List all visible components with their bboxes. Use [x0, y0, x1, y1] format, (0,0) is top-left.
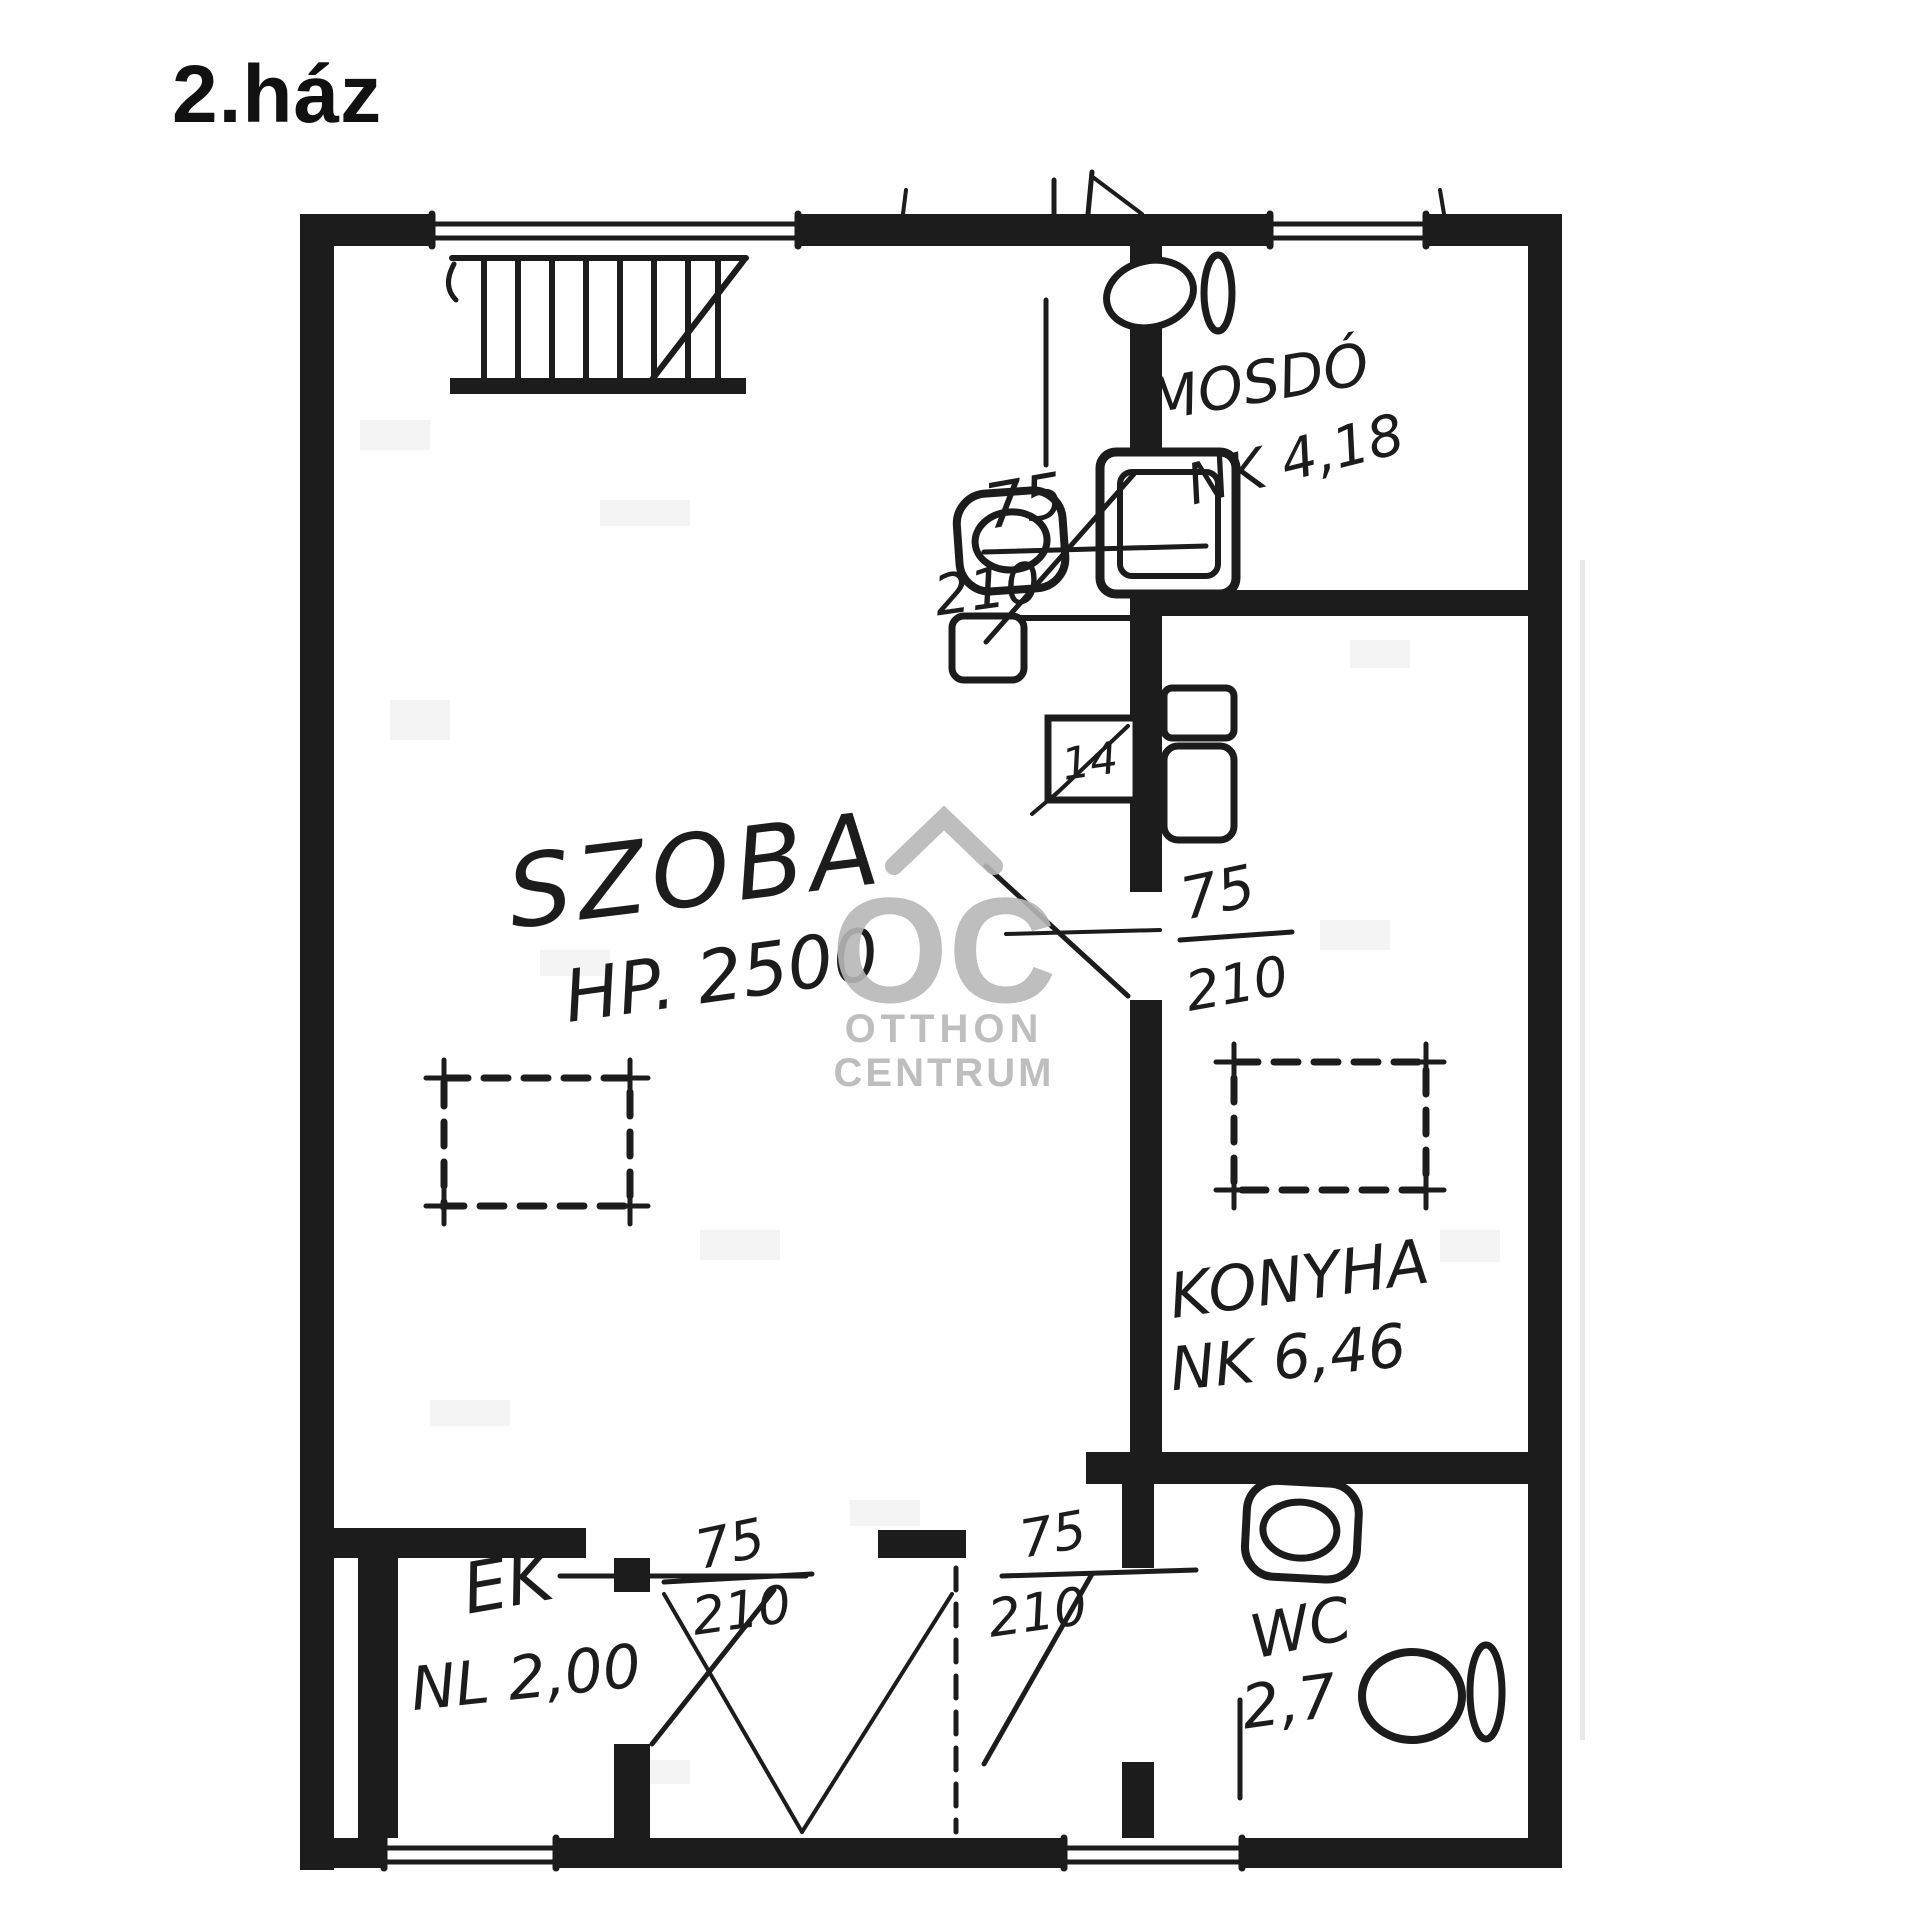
door-height: 210 [984, 1577, 1091, 1650]
window-top-left [432, 212, 798, 248]
room-dim-wc: 2,7 [1237, 1661, 1341, 1744]
cropped-drawing-marks [903, 172, 1444, 214]
window-bottom-center [1064, 1836, 1242, 1870]
flue-label: 14 [1059, 732, 1122, 790]
door-wc: 75 210 [984, 1500, 1196, 1764]
watermark-roof-icon [894, 818, 994, 866]
room-label-wc: WC [1244, 1584, 1358, 1674]
floorplan-drawing: 14 75 210 [0, 0, 1920, 1920]
flue-box: 14 [1032, 718, 1136, 814]
door-width: 75 [1175, 852, 1261, 934]
watermark-line1: OTTHON [845, 1007, 1044, 1051]
watermark-line2: CENTRUM [834, 1051, 1055, 1095]
window-bottom-left [384, 1836, 556, 1870]
mirror-icon [1204, 255, 1232, 331]
kitchen-sink-icon [1164, 688, 1234, 840]
door-width: 75 [979, 458, 1069, 544]
door-height: 210 [688, 1575, 795, 1648]
window-top-right [1270, 212, 1426, 248]
wc-toilet-icon [1243, 1479, 1360, 1581]
dashed-skylight-szoba [426, 1060, 648, 1224]
washbasin-icon [1099, 251, 1200, 336]
wc-radiator-icon [1470, 1645, 1502, 1739]
door-width: 75 [1015, 1500, 1091, 1571]
door-width: 75 [690, 1506, 770, 1582]
wc-basin-icon [1362, 1652, 1462, 1740]
staircase [448, 258, 746, 394]
dashed-skylight-konyha [1216, 1044, 1444, 1208]
room-dim-ek: NL 2,00 [407, 1631, 644, 1725]
floorplan-page: 2.ház [0, 0, 1920, 1920]
door-height: 210 [1181, 944, 1293, 1024]
